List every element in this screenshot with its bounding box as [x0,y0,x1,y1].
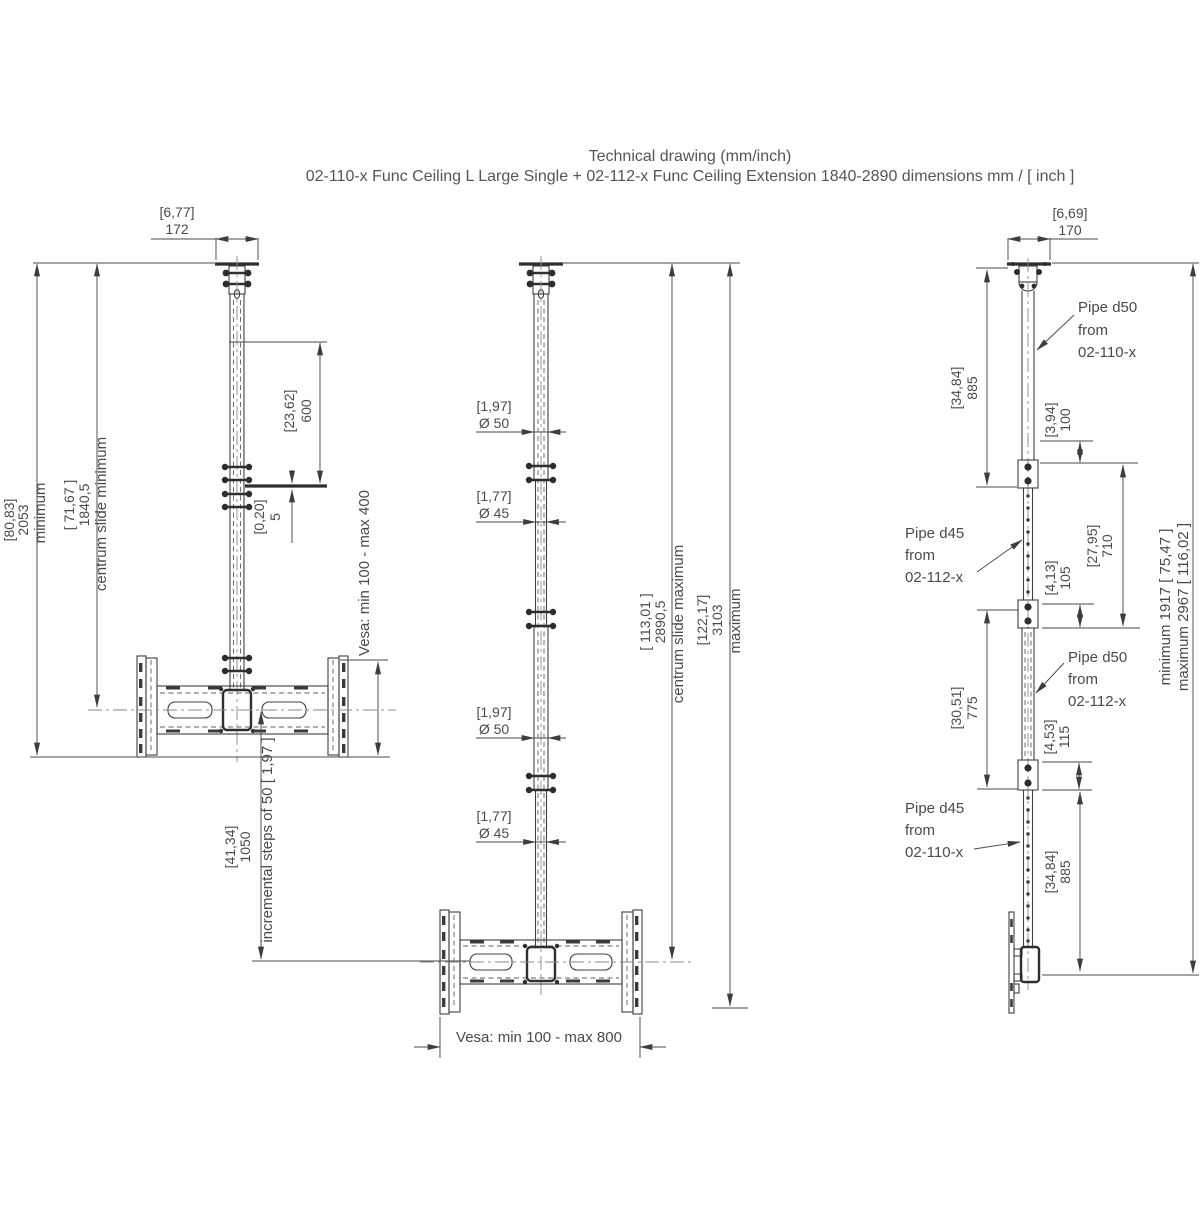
dim-centrum-max-mm: 2890,5 [652,600,668,643]
dim-min-label: minimum [32,483,49,544]
pipe-d50-112-l2: from [1068,671,1098,688]
pipe-d45-112-l2: from [905,547,935,564]
pipe-d50-110-l2: from [1078,322,1108,339]
pipe-d45-112-l1: Pipe d45 [905,525,964,542]
dim-overall-maximum: [122,17] 3103 maximum [694,264,748,1008]
bracket-slot-marks [442,916,638,1007]
dia3-inch: [1,97] [476,704,511,720]
dia1-mm: Ø 50 [479,415,510,431]
dim-max-label: maximum [727,588,744,653]
pipe-d45-110-l1: Pipe d45 [905,800,964,817]
tv-bracket [420,910,695,1014]
title-line1: Technical drawing (mm/inch) [589,148,792,165]
dim-100-mm: 100 [1057,408,1073,432]
dia4-mm: Ø 45 [479,825,510,841]
dim-steps-1050: [41,34] 1050 incremental steps of 50 [ 1… [222,712,470,961]
label-pipe-d45-110: Pipe d45 from 02-110-x [905,800,1020,861]
pipe-d50-110-l3: 02-110-x [1078,344,1137,361]
dim-100-inch: [3,94] [1042,402,1058,437]
label-pipe-d50-110: Pipe d50 from 02-110-x [1037,299,1137,361]
dim-885t-mm: 885 [964,376,980,400]
dim-885-bottom: [34,84] 885 [1042,792,1080,971]
dim-885t-inch: [34,84] [948,367,964,410]
label-pipe-d50-112: Pipe d50 from 02-112-x [1036,649,1127,710]
dim-centrum-max-label: centrum slide maximum [670,545,687,703]
dia4-inch: [1,77] [476,808,511,824]
dim-600-mm: 600 [298,399,314,423]
dim-vesa-800-label: Vesa: min 100 - max 800 [456,1029,622,1046]
dia2-inch: [1,77] [476,488,511,504]
dim-vesa-800: Vesa: min 100 - max 800 [414,1017,666,1058]
dim-vesa-400: Vesa: min 100 - max 400 [340,490,388,755]
dim-left-width-inch: [6,77] [159,204,194,220]
dim-5-mm: 5 [267,513,283,521]
range-minimum: minimum 1917 [ 75,47 ] [1157,529,1174,686]
dim-centrum-max-inch: [ 113,01 ] [637,593,653,650]
dim-105: [4,13] 105 [1042,560,1094,627]
dim-885b-inch: [34,84] [1042,851,1058,894]
dim-600-inch: [23,62] [281,390,297,433]
dim-710-inch: [27,95] [1084,525,1100,568]
pipe-d50-110-l1: Pipe d50 [1078,299,1137,316]
dim-top-width: [6,77] 172 [151,204,258,260]
pipe-d50-112-l3: 02-112-x [1068,693,1127,710]
dim-dia-50-lower: [1,97] Ø 50 [476,704,566,738]
dim-centrum-min-mm: 1840,5 [76,483,92,526]
left-view-minimum: [6,77] 172 [80,83] 2053 minimum [ 71,67 … [1,204,470,961]
technical-drawing: Technical drawing (mm/inch) 02-110-x Fun… [0,0,1200,1200]
dim-left-width-mm: 172 [165,221,189,237]
dim-1050-inch: [41,34] [222,826,238,869]
title-line2: 02-110-x Func Ceiling L Large Single + 0… [306,168,1075,185]
pipe-d50-112-l1: Pipe d50 [1068,649,1127,666]
ceiling-plate [1007,262,1051,291]
dim-max-mm: 3103 [709,604,725,635]
right-view-side: [6,69] 170 Pipe d50 from 02-110-x [34,84… [905,205,1199,1013]
pole [526,256,556,995]
dim-dia-45-lower: [1,77] Ø 45 [476,808,566,842]
pipe-d45-110-l2: from [905,822,935,839]
dim-885-top: [34,84] 885 [948,268,1017,487]
technical-drawing-page: Technical drawing (mm/inch) 02-110-x Fun… [0,0,1200,1200]
dim-right-width-mm: 170 [1058,222,1082,238]
dim-775-inch: [30,51] [948,687,964,730]
dim-710-mm: 710 [1099,534,1115,558]
bracket-slot-marks [139,663,345,753]
dim-105-mm: 105 [1057,566,1073,590]
pole-side [1018,258,1038,990]
dia3-mm: Ø 50 [479,721,510,737]
dim-vesa-400-label: Vesa: min 100 - max 400 [356,490,373,656]
dim-dia-50-upper: [1,97] Ø 50 [476,398,566,432]
dim-100: [3,94] 100 [1040,402,1138,463]
range-maximum: maximum 2967 [ 116,02 ] [1175,523,1192,691]
dim-5-inch: [0,20] [251,499,267,534]
pipe-d45-110-l3: 02-110-x [905,844,964,861]
dim-step-5: [0,20] 5 [245,470,327,543]
dim-min-mm: 2053 [15,504,31,535]
dim-885b-mm: 885 [1057,860,1073,884]
dim-dia-45-upper: [1,77] Ø 45 [476,488,566,522]
dim-115-mm: 115 [1056,726,1072,749]
dia1-inch: [1,97] [476,398,511,414]
drawing-title: Technical drawing (mm/inch) 02-110-x Fun… [306,148,1075,185]
dim-105-inch: [4,13] [1042,560,1058,595]
pole-hub-side [1021,947,1039,982]
dim-max-inch: [122,17] [694,595,710,646]
dim-centrum-slide-minimum: [ 71,67 ] 1840,5 centrum slide minimum [61,264,110,707]
dim-centrum-min-inch: [ 71,67 ] [61,480,77,531]
pipe-d45-112-l3: 02-112-x [905,569,964,586]
dim-right-width-inch: [6,69] [1052,205,1087,221]
dim-1050-label: incremental steps of 50 [ 1,97 ] [259,737,276,942]
dim-775: [30,51] 775 [948,610,1018,789]
dim-top-width-side: [6,69] 170 [1008,205,1098,260]
dia2-mm: Ø 45 [479,505,510,521]
dim-115-inch: [4,53] [1041,719,1057,754]
dim-1050-mm: 1050 [237,831,253,862]
dim-775-mm: 775 [964,696,980,720]
dim-overall-minimum: [80,83] 2053 minimum [1,263,390,757]
label-pipe-d45-112: Pipe d45 from 02-112-x [905,525,1022,586]
dim-centrum-min-label: centrum slide minimum [93,437,110,591]
middle-view-maximum: [1,97] Ø 50 [1,77] Ø 45 [1,97] Ø 50 [1,7… [414,256,748,1058]
dim-115: [4,53] 115 [1041,719,1092,790]
